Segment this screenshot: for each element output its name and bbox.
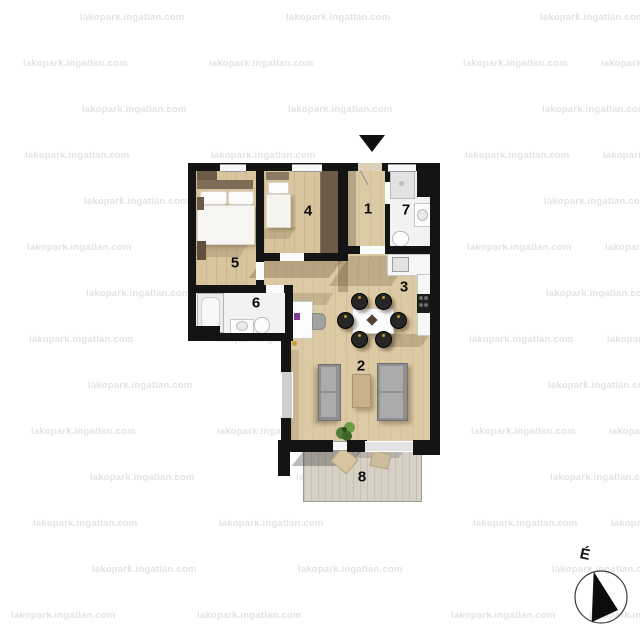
watermark-text: lakopark.ingatlan.com [23, 58, 128, 69]
watermark-text: lakopark.ingatlan.com [611, 518, 640, 529]
shower-drain [399, 181, 404, 186]
sofa-cushion [380, 366, 403, 391]
wall-room5-room4 [256, 171, 264, 262]
sofa-cushion [321, 367, 336, 391]
watermark-text: lakopark.ingatlan.com [540, 12, 640, 23]
room-label-8: 8 [358, 469, 366, 486]
watermark-text: lakopark.ingatlan.com [197, 610, 302, 621]
watermark-text: lakopark.ingatlan.com [548, 380, 640, 391]
burner [419, 303, 423, 307]
room-label-7: 7 [402, 202, 410, 219]
pillow [268, 182, 289, 194]
watermark-text: lakopark.ingatlan.com [25, 150, 130, 161]
dining-chair [375, 293, 392, 310]
watermark-text: lakopark.ingatlan.com [90, 472, 195, 483]
door-room5 [256, 262, 264, 280]
wall-room6-bottom [188, 333, 293, 341]
watermark-text: lakopark.ingatlan.com [603, 150, 640, 161]
watermark-text: lakopark.ingatlan.com [298, 564, 403, 575]
watermark-text: lakopark.ingatlan.com [601, 58, 640, 69]
wall-room6-living [285, 285, 293, 341]
watermark-text: lakopark.ingatlan.com [92, 564, 197, 575]
floor-lamp [292, 341, 297, 346]
watermark-text: lakopark.ingatlan.com [609, 426, 640, 437]
office-chair [312, 313, 326, 330]
nightstand [197, 197, 204, 210]
cooktop [417, 294, 430, 313]
watermark-text: lakopark.ingatlan.com [219, 518, 324, 529]
window [333, 441, 347, 451]
kitchen-sink [392, 257, 409, 272]
wall-bottom-leg [278, 442, 290, 476]
potted-plant [336, 422, 356, 442]
watermark-text: lakopark.ingatlan.com [471, 426, 576, 437]
washbasin-bowl [236, 321, 248, 331]
sofa-cushion [321, 393, 336, 417]
dining-chair [337, 312, 354, 329]
window [292, 164, 322, 172]
cast-shadow [348, 171, 356, 246]
watermark-text: lakopark.ingatlan.com [467, 242, 572, 253]
watermark-text: lakopark.ingatlan.com [82, 104, 187, 115]
wall-room4-room1 [338, 163, 348, 261]
watermark-text: lakopark.ingatlan.com [86, 288, 191, 299]
dining-chair [351, 293, 368, 310]
window [281, 372, 293, 418]
dining-chair [351, 331, 368, 348]
washbasin-bowl [417, 209, 428, 221]
watermark-text: lakopark.ingatlan.com [29, 334, 134, 345]
wall-right [430, 163, 440, 440]
watermark-text: lakopark.ingatlan.com [88, 380, 193, 391]
watermark-text: lakopark.ingatlan.com [463, 58, 568, 69]
watermark-text: lakopark.ingatlan.com [544, 196, 640, 207]
watermark-text: lakopark.ingatlan.com [607, 334, 640, 345]
watermark-text: lakopark.ingatlan.com [31, 426, 136, 437]
dining-chair [375, 331, 392, 348]
watermark-text: lakopark.ingatlan.com [550, 472, 640, 483]
north-compass [566, 564, 638, 636]
window [388, 164, 416, 172]
watermark-text: lakopark.ingatlan.com [84, 196, 189, 207]
watermark-text: lakopark.ingatlan.com [27, 242, 132, 253]
watermark-text: lakopark.ingatlan.com [546, 288, 640, 299]
burner [419, 296, 423, 300]
door-room7 [385, 182, 390, 204]
window [220, 164, 246, 172]
entrance-door [358, 163, 382, 171]
watermark-text: lakopark.ingatlan.com [288, 104, 393, 115]
dining-chair [390, 312, 407, 329]
sofa-cushion [380, 393, 403, 418]
wall-bottom-right [413, 440, 440, 455]
double-bed [197, 205, 255, 245]
watermark-text: lakopark.ingatlan.com [11, 610, 116, 621]
toilet [392, 231, 409, 247]
burner [424, 296, 428, 300]
watermark-text: lakopark.ingatlan.com [211, 150, 316, 161]
watermark-text: lakopark.ingatlan.com [33, 518, 138, 529]
single-bed-headboard [266, 172, 289, 180]
sofa [377, 363, 408, 421]
single-bed [266, 194, 291, 228]
room-label-4: 4 [304, 203, 312, 220]
watermark-text: lakopark.ingatlan.com [473, 518, 578, 529]
room-label-5: 5 [231, 255, 239, 272]
living-room-floor [291, 261, 430, 442]
wardrobe [320, 171, 339, 253]
room-label-2: 2 [357, 358, 365, 375]
pillow [200, 191, 227, 205]
plant-center [342, 427, 347, 432]
watermark-text: lakopark.ingatlan.com [465, 150, 570, 161]
cabinet-dark [196, 326, 220, 333]
pillow [228, 191, 254, 205]
door-room1-living [360, 246, 385, 254]
wall-left [188, 163, 196, 341]
watermark-text: lakopark.ingatlan.com [286, 12, 391, 23]
room-label-1: 1 [364, 201, 372, 218]
compass-needle [592, 572, 618, 622]
door-room6 [266, 285, 284, 293]
dresser [197, 241, 206, 260]
watermark-text: lakopark.ingatlan.com [542, 104, 640, 115]
burner [424, 303, 428, 307]
wall-bottom-pier [347, 440, 367, 452]
toilet [254, 317, 270, 334]
watermark-text: lakopark.ingatlan.com [605, 242, 640, 253]
terrace-sliding-door [365, 441, 413, 452]
entrance-marker-icon [359, 135, 385, 152]
watermark-text: lakopark.ingatlan.com [209, 58, 314, 69]
sofa [318, 364, 341, 421]
shaft [417, 171, 430, 197]
coffee-table [352, 374, 371, 408]
floor-plan-page: lakopark.ingatlan.comlakopark.ingatlan.c… [0, 0, 640, 640]
desk [291, 301, 313, 339]
wall-room1-room7 [385, 163, 390, 246]
desk-item [294, 313, 300, 320]
bathtub-basin [201, 297, 220, 329]
double-bed-headboard [197, 180, 253, 189]
room-label-3: 3 [400, 279, 408, 296]
watermark-text: lakopark.ingatlan.com [80, 12, 185, 23]
watermark-text: lakopark.ingatlan.com [469, 334, 574, 345]
watermark-text: lakopark.ingatlan.com [451, 610, 556, 621]
room-label-6: 6 [252, 295, 260, 312]
door-room4 [280, 253, 304, 261]
